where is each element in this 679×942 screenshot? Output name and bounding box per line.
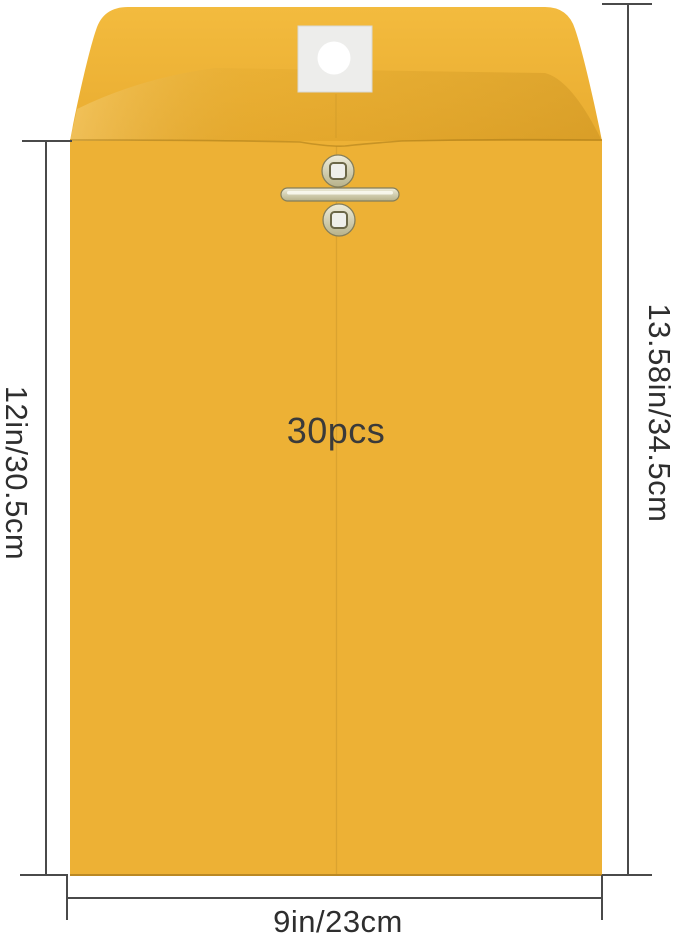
reinforcement-patch [298, 26, 372, 92]
height-dimension-line-left [45, 141, 47, 875]
height-dimension-tick-right-top [602, 3, 652, 5]
product-image: 30pcs 12in/30.5cm 13.58in/34.5cm 9in/23c… [0, 0, 679, 942]
quantity-label: 30pcs [236, 409, 436, 453]
clasp-top-eyelet-hole [330, 163, 346, 179]
height-dimension-tick-left-bottom [20, 874, 68, 876]
height-dimension-label-right: 13.58in/34.5cm [641, 273, 677, 553]
width-dimension-tick-left [66, 875, 68, 920]
hanging-hole [318, 42, 351, 75]
height-dimension-tick-right-bottom [602, 874, 652, 876]
height-dimension-tick-left-top [22, 140, 72, 142]
clasp-bottom-eyelet-hole [331, 212, 347, 228]
clasp-bar-highlight [287, 191, 393, 195]
height-dimension-label-left: 12in/30.5cm [0, 333, 34, 613]
width-dimension-label-bottom: 9in/23cm [188, 904, 488, 942]
width-dimension-tick-right [601, 875, 603, 920]
height-dimension-line-right [627, 4, 629, 875]
envelope-graphic [0, 0, 679, 942]
width-dimension-line-bottom [67, 897, 603, 899]
